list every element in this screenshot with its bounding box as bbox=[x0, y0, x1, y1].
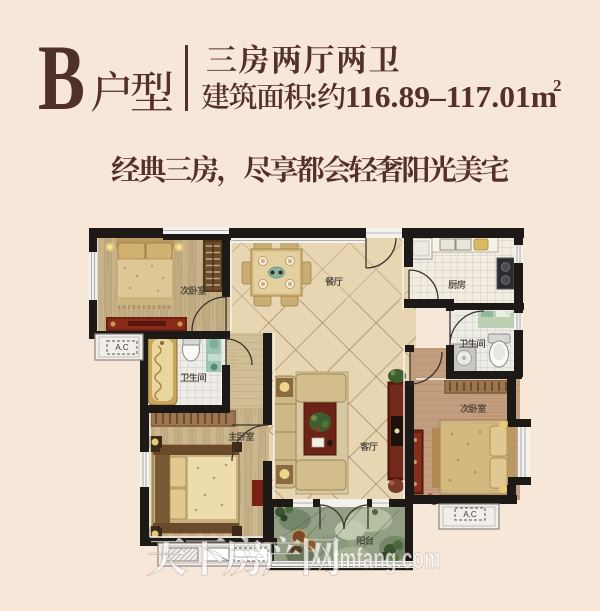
svg-text:2: 2 bbox=[553, 76, 562, 95]
svg-text:A.C: A.C bbox=[115, 343, 129, 352]
svg-text:tmfang.com: tmfang.com bbox=[333, 543, 441, 575]
svg-text:116.89–117.01m: 116.89–117.01m bbox=[345, 79, 557, 114]
svg-text:B: B bbox=[38, 27, 85, 130]
svg-text:A.C: A.C bbox=[463, 510, 477, 519]
